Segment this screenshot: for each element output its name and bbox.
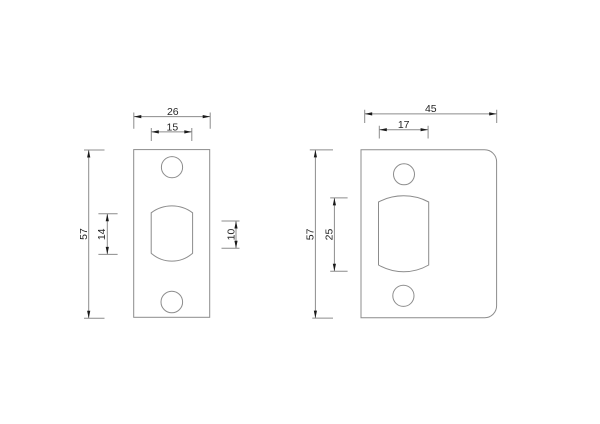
svg-text:57: 57 (305, 228, 317, 240)
svg-text:15: 15 (167, 121, 179, 133)
svg-text:17: 17 (398, 119, 410, 131)
svg-text:57: 57 (78, 228, 90, 240)
svg-text:14: 14 (96, 228, 108, 240)
svg-text:45: 45 (425, 103, 437, 115)
svg-text:25: 25 (324, 229, 336, 241)
svg-text:26: 26 (167, 106, 179, 118)
svg-text:10: 10 (225, 229, 237, 241)
